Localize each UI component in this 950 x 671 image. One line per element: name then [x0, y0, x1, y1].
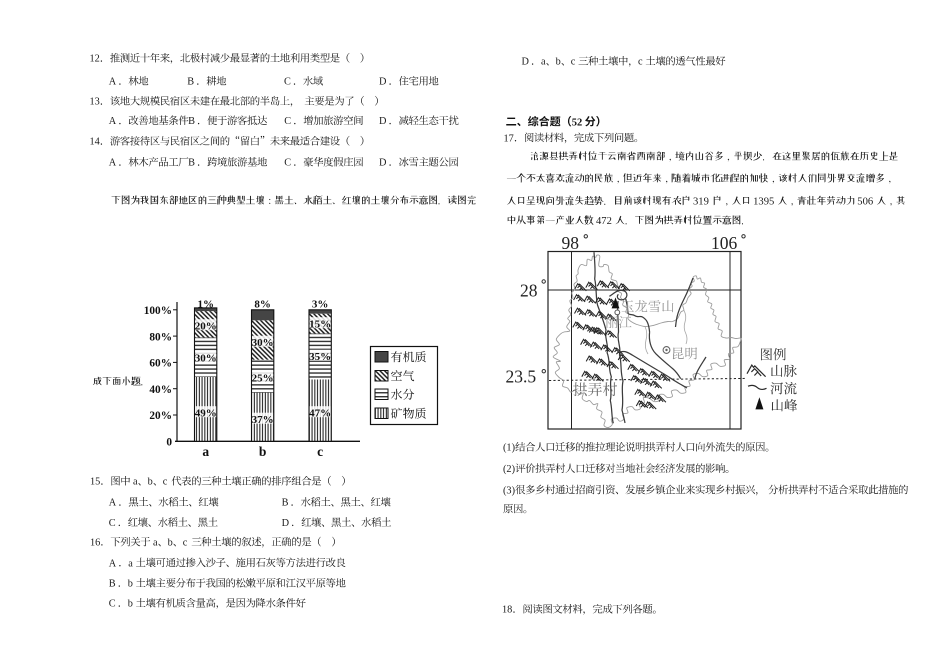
svg-text:472: 472 — [596, 216, 612, 227]
svg-text:c: c — [163, 477, 168, 488]
svg-text:28: 28 — [520, 281, 538, 301]
svg-text:17: 17 — [504, 133, 514, 144]
svg-text:1%: 1% — [197, 299, 214, 311]
svg-text:A: A — [109, 498, 117, 509]
svg-text:0: 0 — [166, 437, 172, 449]
svg-text:52: 52 — [572, 117, 583, 128]
svg-text:30%: 30% — [252, 337, 274, 349]
svg-text:506: 506 — [857, 196, 873, 207]
svg-text:c: c — [183, 538, 188, 549]
svg-text:a: a — [128, 558, 133, 569]
svg-text:A: A — [109, 158, 117, 169]
svg-text:b: b — [148, 477, 153, 488]
svg-text:40%: 40% — [149, 384, 172, 396]
svg-text:D: D — [522, 57, 530, 68]
svg-text:D: D — [379, 116, 387, 127]
svg-text:(1): (1) — [503, 443, 515, 454]
svg-text:b: b — [556, 57, 561, 68]
svg-text:b: b — [128, 599, 133, 610]
svg-text:30%: 30% — [195, 352, 217, 364]
svg-text:49%: 49% — [195, 407, 217, 419]
svg-text:C: C — [284, 116, 291, 127]
svg-text:B: B — [188, 116, 195, 127]
svg-text:(3): (3) — [503, 485, 515, 496]
svg-text:A: A — [109, 116, 117, 127]
svg-text:25%: 25% — [252, 372, 274, 384]
svg-text:B: B — [109, 579, 116, 590]
svg-text:3%: 3% — [312, 299, 329, 311]
svg-text:60%: 60% — [149, 358, 172, 370]
svg-text:B: B — [188, 158, 195, 169]
svg-text:c: c — [317, 444, 323, 459]
svg-text:a: a — [153, 538, 158, 549]
svg-text:a: a — [541, 57, 546, 68]
svg-text:b: b — [259, 444, 267, 459]
svg-text:A: A — [109, 77, 117, 88]
svg-text:D: D — [379, 158, 387, 169]
svg-text:A: A — [109, 558, 117, 569]
svg-text:D: D — [379, 77, 387, 88]
svg-text:100%: 100% — [144, 305, 172, 317]
svg-text:b: b — [128, 579, 133, 590]
svg-text:18: 18 — [502, 605, 512, 616]
svg-text:106: 106 — [711, 233, 738, 253]
svg-text:(2): (2) — [503, 464, 515, 475]
svg-text:12: 12 — [90, 54, 100, 65]
svg-text:20%: 20% — [195, 320, 217, 332]
svg-text:15%: 15% — [309, 318, 331, 330]
svg-text:C: C — [284, 77, 291, 88]
svg-text:C: C — [109, 599, 116, 610]
svg-text:B: B — [282, 498, 289, 509]
svg-text:15: 15 — [90, 477, 100, 488]
svg-text:C: C — [109, 518, 116, 529]
svg-text:c: c — [638, 57, 643, 68]
svg-text:20%: 20% — [149, 410, 172, 422]
svg-text:a: a — [202, 444, 209, 459]
svg-text:13: 13 — [90, 97, 100, 108]
svg-text:1395: 1395 — [753, 196, 774, 207]
svg-text:a: a — [133, 477, 138, 488]
svg-text:47%: 47% — [309, 407, 331, 419]
svg-text:16: 16 — [90, 538, 100, 549]
svg-text:23.5: 23.5 — [506, 367, 537, 387]
svg-text:b: b — [168, 538, 173, 549]
svg-text:35%: 35% — [309, 351, 331, 363]
svg-text:319: 319 — [693, 196, 709, 207]
svg-text:B: B — [187, 77, 194, 88]
svg-text:C: C — [284, 158, 291, 169]
svg-text:D: D — [282, 518, 290, 529]
svg-text:37%: 37% — [252, 414, 274, 426]
svg-text:80%: 80% — [149, 331, 172, 343]
svg-text:14: 14 — [90, 137, 100, 148]
svg-text:8%: 8% — [254, 299, 271, 311]
svg-text:98: 98 — [562, 233, 580, 253]
svg-text:c: c — [571, 57, 576, 68]
